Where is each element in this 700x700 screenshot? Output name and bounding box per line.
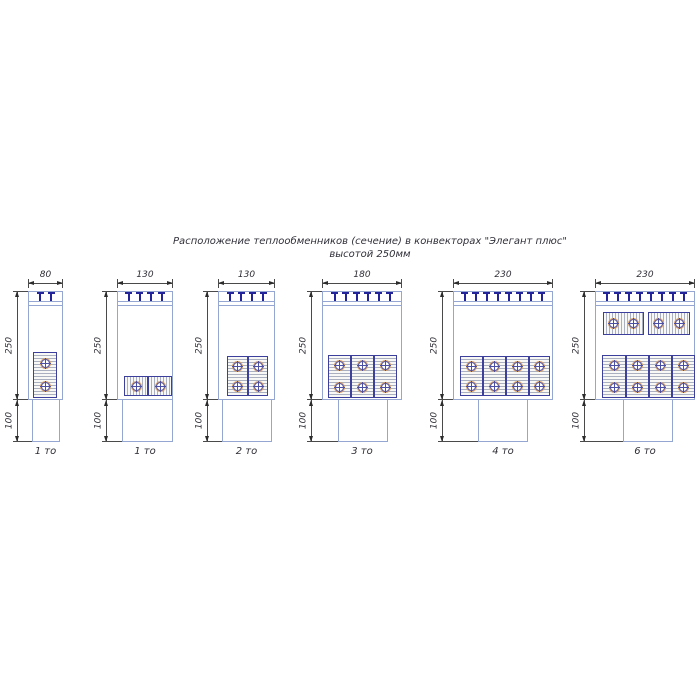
dimension-tick [580, 441, 623, 442]
width-dimension-line [117, 283, 173, 284]
dimension-tick [102, 441, 122, 442]
dimension-tick [552, 279, 553, 288]
tube-section [679, 361, 688, 370]
width-dimension-label: 130 [208, 270, 285, 280]
grille-clip [603, 292, 610, 301]
tube-section [467, 382, 476, 391]
grille-clip [680, 292, 687, 301]
grille-clip [505, 292, 512, 301]
dimension-tick [453, 279, 454, 288]
width-dimension-label: 180 [312, 270, 412, 280]
grille-clip [647, 292, 654, 301]
grille-clip [147, 292, 154, 301]
grille-clip-row [323, 292, 401, 301]
dimension-tick [117, 279, 118, 288]
dimension-arrow [582, 400, 586, 406]
dimension-tick [203, 291, 218, 292]
tube-section [633, 383, 642, 392]
grille-clip-row [29, 292, 62, 301]
grille-line [323, 305, 401, 306]
drawing-title-line2: высотой 250мм [150, 248, 590, 261]
tube-section [132, 382, 141, 391]
tube-section [381, 383, 390, 392]
tube-section [535, 382, 544, 391]
dimension-tick [401, 279, 402, 288]
grille-line [118, 301, 172, 302]
diagram-caption: 1 то [8, 446, 83, 457]
width-dimension-label: 230 [443, 270, 563, 280]
grille-line [596, 301, 694, 302]
tube-section [156, 382, 165, 391]
grille-line [219, 301, 274, 302]
grille-line [454, 301, 552, 302]
height-dimension-line [584, 291, 585, 442]
grille-clip [249, 292, 256, 301]
dimension-tick [28, 279, 29, 288]
dimension-tick [13, 441, 32, 442]
dimension-tick [580, 291, 595, 292]
tube-section [335, 361, 344, 370]
grille-clip-row [454, 292, 552, 301]
grille-clip [125, 292, 132, 301]
width-dimension-label: 230 [585, 270, 700, 280]
dimension-tick [102, 291, 117, 292]
grille-line [323, 301, 401, 302]
height-dimension-line [207, 291, 208, 442]
width-dimension-line [453, 283, 553, 284]
base-dimension-label: 100 [299, 406, 310, 436]
tube-section [254, 382, 263, 391]
height-dimension-label: 250 [5, 331, 16, 361]
tube-section [233, 382, 242, 391]
dimension-arrow [104, 400, 108, 406]
width-dimension-line [322, 283, 402, 284]
base-dimension-label: 100 [195, 406, 206, 436]
width-dimension-label: 80 [18, 270, 73, 280]
dimension-tick [694, 279, 695, 288]
dimension-tick [13, 291, 28, 292]
tube-section [610, 361, 619, 370]
tube-section [656, 383, 665, 392]
grille-line [596, 305, 694, 306]
grille-clip [238, 292, 245, 301]
grille-clip [461, 292, 468, 301]
grille-clip [472, 292, 479, 301]
dimension-arrow [205, 400, 209, 406]
grille-line [29, 305, 62, 306]
tube-section [633, 361, 642, 370]
grille-clip [364, 292, 371, 301]
grille-line [29, 301, 62, 302]
grille-clip [527, 292, 534, 301]
dimension-arrow [15, 400, 19, 406]
dimension-tick [307, 441, 338, 442]
technical-drawing: Расположение теплообменников (сечение) в… [0, 0, 700, 700]
grille-clip [48, 292, 55, 301]
dimension-tick [203, 399, 218, 400]
floor-duct [478, 400, 528, 442]
dimension-tick [203, 441, 222, 442]
base-dimension-label: 100 [572, 406, 583, 436]
grille-clip [331, 292, 338, 301]
floor-duct [623, 400, 673, 442]
dimension-tick [307, 399, 322, 400]
grille-clip [227, 292, 234, 301]
base-dimension-label: 100 [430, 406, 441, 436]
grille-line [118, 305, 172, 306]
grille-clip [658, 292, 665, 301]
dimension-tick [13, 399, 28, 400]
grille-line [219, 305, 274, 306]
floor-duct [32, 400, 60, 442]
tube-section [358, 361, 367, 370]
height-dimension-line [311, 291, 312, 442]
grille-clip-row [219, 292, 274, 301]
dimension-tick [322, 279, 323, 288]
grille-clip [386, 292, 393, 301]
width-dimension-label: 130 [107, 270, 183, 280]
diagram-caption: 3 то [302, 446, 422, 457]
height-dimension-label: 250 [94, 331, 105, 361]
tube-section [629, 319, 638, 328]
tube-section [513, 382, 522, 391]
drawing-title: Расположение теплообменников (сечение) в… [150, 235, 590, 261]
tube-section [675, 319, 684, 328]
grille-clip [669, 292, 676, 301]
grille-clip [136, 292, 143, 301]
tube-section [254, 362, 263, 371]
diagram-caption: 1 то [97, 446, 193, 457]
base-dimension-label: 100 [94, 406, 105, 436]
diagram-caption: 2 то [198, 446, 295, 457]
tube-section [233, 362, 242, 371]
dimension-tick [62, 279, 63, 288]
dimension-tick [307, 291, 322, 292]
tube-section [654, 319, 663, 328]
tube-section [656, 361, 665, 370]
height-dimension-label: 250 [572, 331, 583, 361]
grille-clip [494, 292, 501, 301]
grille-clip-row [118, 292, 172, 301]
height-dimension-label: 250 [299, 331, 310, 361]
dimension-tick [438, 441, 478, 442]
height-dimension-line [17, 291, 18, 442]
tube-section [610, 383, 619, 392]
dimension-arrow [440, 400, 444, 406]
grille-clip [158, 292, 165, 301]
height-dimension-label: 250 [195, 331, 206, 361]
grille-clip [538, 292, 545, 301]
floor-duct [222, 400, 272, 442]
dimension-tick [438, 291, 453, 292]
grille-clip [375, 292, 382, 301]
height-dimension-line [106, 291, 107, 442]
dimension-tick [172, 279, 173, 288]
floor-duct [122, 400, 173, 442]
grille-clip-row [596, 292, 694, 301]
dimension-tick [595, 279, 596, 288]
tube-section [679, 383, 688, 392]
grille-clip [342, 292, 349, 301]
tube-section [335, 383, 344, 392]
tube-section [381, 361, 390, 370]
dimension-tick [218, 279, 219, 288]
width-dimension-line [595, 283, 695, 284]
floor-duct [338, 400, 388, 442]
tube-section [41, 382, 50, 391]
grille-clip [260, 292, 267, 301]
dimension-tick [580, 399, 595, 400]
drawing-title-line1: Расположение теплообменников (сечение) в… [150, 235, 590, 248]
grille-clip [614, 292, 621, 301]
tube-section [490, 362, 499, 371]
dimension-tick [438, 399, 453, 400]
grille-line [454, 305, 552, 306]
grille-clip [516, 292, 523, 301]
tube-section [513, 362, 522, 371]
tube-section [609, 319, 618, 328]
grille-clip [483, 292, 490, 301]
tube-section [358, 383, 367, 392]
base-dimension-label: 100 [5, 406, 16, 436]
grille-clip [636, 292, 643, 301]
tube-section [41, 359, 50, 368]
grille-clip [37, 292, 44, 301]
tube-section [490, 382, 499, 391]
dimension-tick [274, 279, 275, 288]
grille-clip [625, 292, 632, 301]
dimension-arrow [309, 400, 313, 406]
tube-section [467, 362, 476, 371]
diagram-caption: 6 то [575, 446, 700, 457]
height-dimension-line [442, 291, 443, 442]
diagram-caption: 4 то [433, 446, 573, 457]
tube-section [535, 362, 544, 371]
height-dimension-label: 250 [430, 331, 441, 361]
dimension-tick [102, 399, 117, 400]
grille-clip [353, 292, 360, 301]
width-dimension-line [218, 283, 275, 284]
